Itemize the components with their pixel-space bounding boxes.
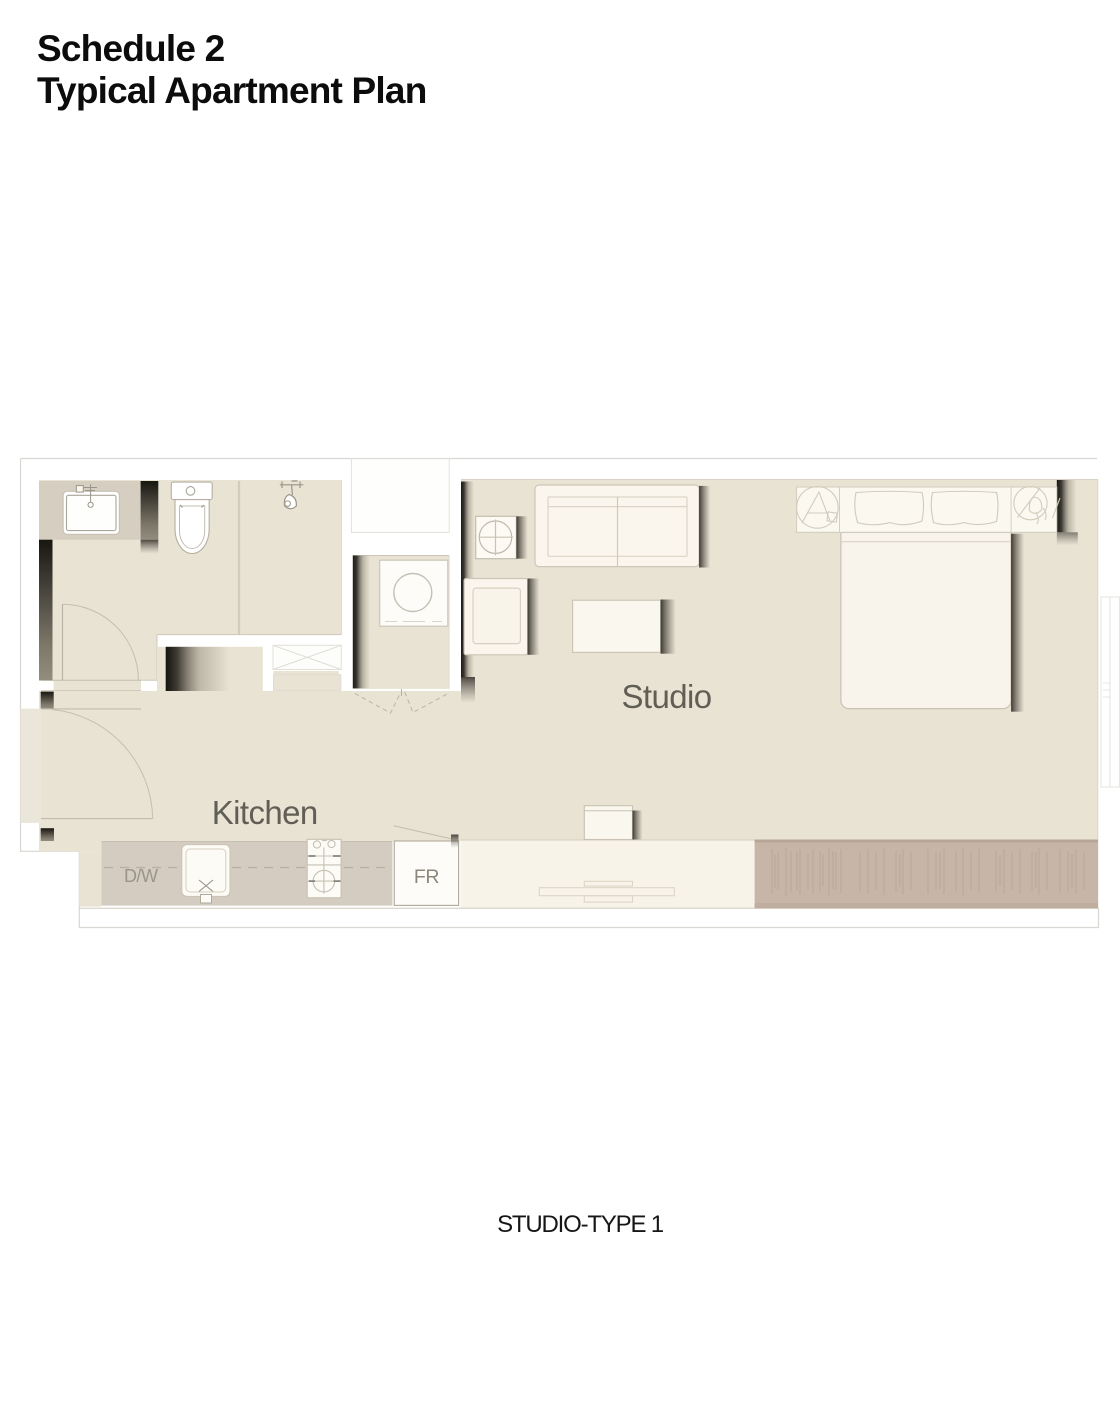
svg-text:FR: FR — [414, 866, 440, 888]
svg-text:Kitchen: Kitchen — [212, 794, 318, 831]
svg-text:D/W: D/W — [124, 866, 158, 886]
svg-text:Studio: Studio — [622, 678, 712, 715]
